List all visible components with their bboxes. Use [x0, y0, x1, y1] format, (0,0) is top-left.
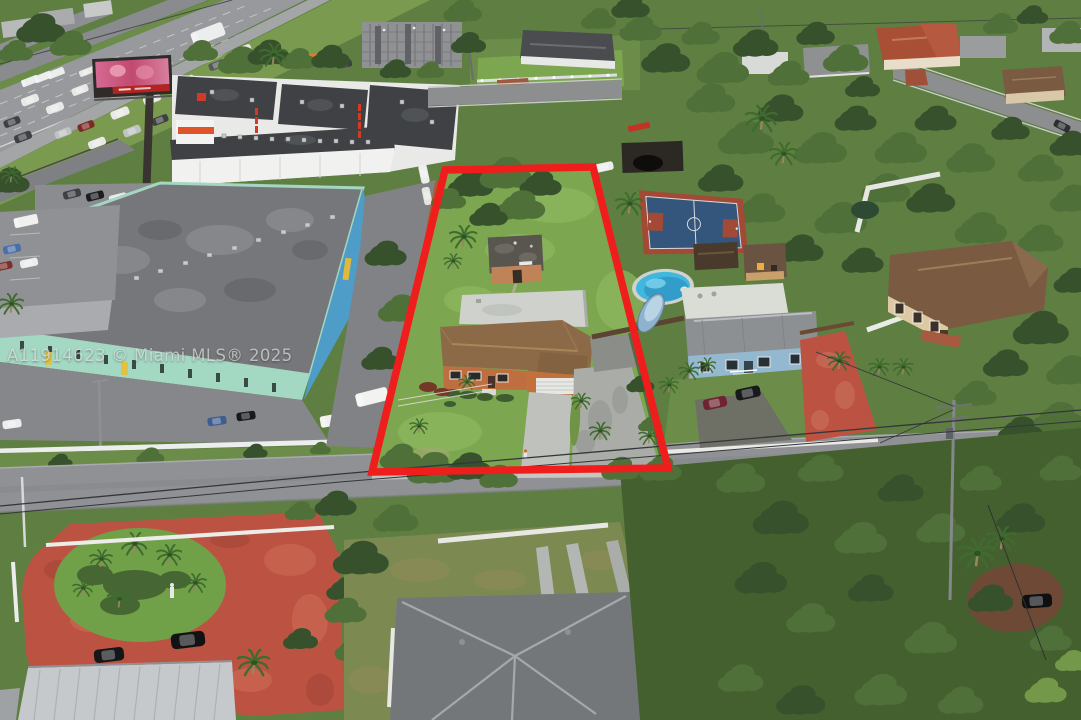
front-door [488, 376, 495, 388]
lit-window [757, 263, 764, 270]
shed-door [513, 270, 523, 283]
neighbor-house [1002, 66, 1066, 104]
flat-roof-addition [459, 290, 587, 327]
shed [488, 235, 544, 285]
statue [170, 587, 174, 598]
red-courtyard [0, 512, 377, 720]
neighbor-roof [960, 36, 1006, 58]
metal-roof-building [18, 662, 236, 720]
power-substation [362, 22, 462, 68]
storage-office [176, 120, 214, 144]
white-fence [13, 562, 17, 622]
carport [621, 122, 683, 173]
aerial-listing-photo: A11914623 © Miami MLS® 2025 [0, 0, 1081, 720]
main-house [440, 320, 593, 396]
orange-canopy [178, 127, 214, 134]
transformer [946, 428, 953, 439]
east-neighbors [594, 119, 1081, 448]
cottage [743, 243, 787, 281]
green-tarp [851, 201, 879, 219]
billboard-screen [95, 58, 169, 88]
gazebo [693, 242, 738, 270]
mls-watermark: A11914623 © Miami MLS® 2025 [7, 346, 293, 365]
red-kayak [628, 122, 651, 132]
gray-roof [0, 688, 20, 720]
